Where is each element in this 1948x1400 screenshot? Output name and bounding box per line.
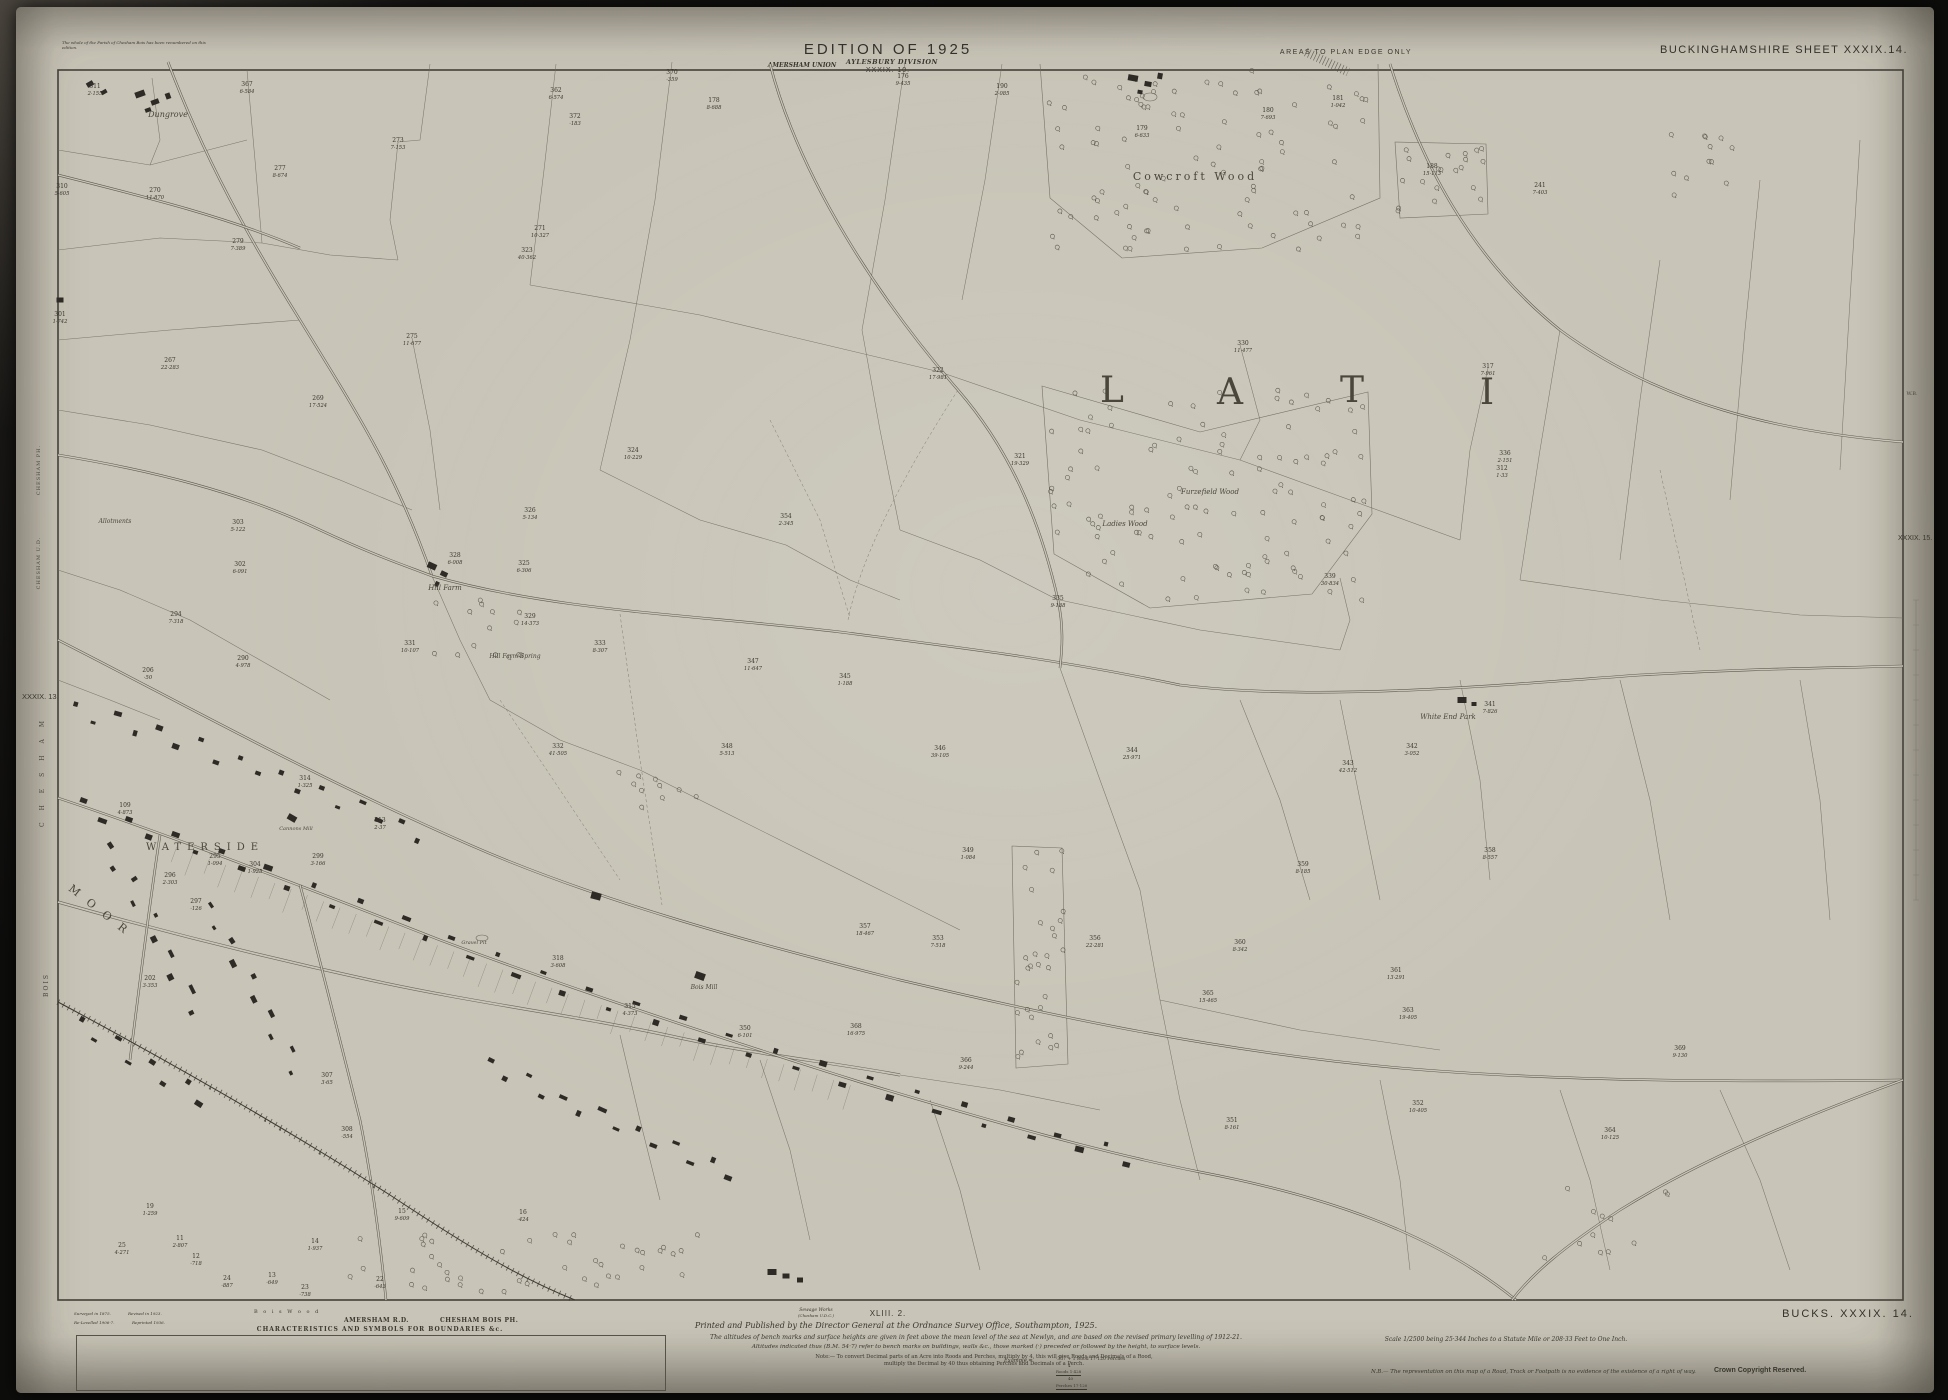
tree-icon	[606, 1274, 610, 1278]
field-boundary	[900, 530, 1058, 600]
parcel-number: 314	[299, 775, 311, 782]
tree-icon	[458, 1283, 462, 1287]
building	[981, 1123, 986, 1128]
parcel-number: 372	[569, 113, 581, 120]
tree-icon	[1189, 466, 1193, 470]
tree-icon	[1121, 89, 1122, 90]
tree-icon	[1091, 522, 1095, 526]
parcel-acreage: 4·873	[117, 810, 134, 816]
garden-strip	[843, 1085, 851, 1109]
tree-icon	[1060, 145, 1064, 149]
tree-icon	[682, 1253, 683, 1254]
building	[558, 990, 566, 997]
tree-icon	[1098, 470, 1099, 471]
parcel-number: 178	[708, 97, 720, 104]
field-boundary	[1160, 1000, 1200, 1180]
tree-icon	[563, 1265, 567, 1269]
parcel-acreage: 11·647	[744, 666, 763, 672]
building	[487, 1057, 495, 1064]
building	[294, 788, 301, 794]
tree-icon	[1612, 1221, 1613, 1222]
parcel-acreage: 7·389	[231, 246, 247, 252]
parcel-number: 335	[1052, 595, 1064, 602]
tree-icon	[1023, 865, 1027, 869]
tree-icon	[1321, 461, 1325, 465]
parcel-acreage: 7·693	[1261, 115, 1277, 121]
tree-icon	[1026, 869, 1027, 870]
tree-icon	[421, 1242, 425, 1246]
tree-icon	[1087, 517, 1091, 521]
parcel-acreage: 19·329	[1011, 461, 1030, 467]
parcel-number: 345	[839, 673, 851, 680]
tree-icon	[1168, 493, 1172, 497]
tree-icon	[1325, 454, 1329, 458]
tree-icon	[1457, 172, 1458, 173]
tree-icon	[493, 614, 494, 615]
tree-icon	[1707, 159, 1711, 163]
tree-icon	[594, 1283, 598, 1287]
tree-icon	[1719, 136, 1723, 140]
tree-icon	[1070, 506, 1071, 507]
tree-icon	[1308, 222, 1312, 226]
tree-icon	[514, 620, 518, 624]
tree-icon	[1484, 163, 1485, 164]
building	[155, 724, 163, 731]
tree-icon	[1236, 95, 1237, 96]
tree-icon	[1546, 1260, 1547, 1261]
tree-icon	[1333, 450, 1337, 454]
tree-icon	[1733, 150, 1734, 151]
building	[768, 1269, 777, 1275]
parcel-number: 361	[1390, 967, 1401, 974]
tree-icon	[1194, 595, 1198, 599]
road	[1390, 64, 1903, 442]
building	[107, 841, 114, 849]
field-boundary	[600, 470, 786, 545]
parcel-acreage: 1·742	[53, 319, 68, 325]
tree-icon	[1042, 1010, 1043, 1011]
tree-icon	[1015, 1011, 1019, 1015]
tree-icon	[1265, 559, 1269, 563]
tree-icon	[1602, 1254, 1603, 1255]
tree-icon	[1176, 126, 1180, 130]
parcel-acreage: 5·605	[55, 191, 70, 197]
parcel-number: 329	[524, 613, 536, 620]
tree-icon	[1036, 956, 1037, 957]
parcel-number: 370	[666, 69, 678, 76]
tree-icon	[1577, 1241, 1581, 1245]
tree-icon	[1038, 1005, 1042, 1009]
field-boundary	[262, 450, 412, 510]
tree-icon	[1632, 1241, 1636, 1245]
parcel-number: 317	[1482, 363, 1494, 370]
parcel-acreage: 6·008	[448, 560, 464, 566]
tree-icon	[1305, 455, 1309, 459]
tree-icon	[1323, 520, 1324, 521]
parcel-acreage: 8·557	[1483, 855, 1499, 861]
building	[57, 298, 64, 303]
tree-icon	[1134, 530, 1138, 534]
building	[838, 1081, 847, 1088]
tree-icon	[517, 610, 521, 614]
tree-icon	[1262, 171, 1263, 172]
tree-icon	[1052, 1049, 1053, 1050]
tree-icon	[479, 1289, 483, 1293]
parcel-number: 365	[1202, 990, 1214, 997]
parcel-acreage: 22·281	[1085, 943, 1104, 949]
tree-icon	[599, 1262, 603, 1266]
parcel-acreage: 30·834	[1321, 581, 1339, 587]
parcel-acreage: 5·134	[523, 515, 538, 521]
tree-icon	[1356, 234, 1360, 238]
tree-icon	[517, 1279, 521, 1283]
tree-icon	[632, 782, 636, 786]
place-label: Cannons Mill	[279, 826, 313, 832]
tree-icon	[1018, 984, 1019, 985]
tree-icon	[1594, 1237, 1595, 1238]
tree-icon	[1058, 1047, 1059, 1048]
tree-icon	[680, 1273, 684, 1277]
tree-icon	[1261, 590, 1265, 594]
field-boundary	[1620, 260, 1660, 560]
tree-icon	[1361, 118, 1365, 122]
tree-icon	[361, 1241, 362, 1242]
field-boundary	[940, 372, 1240, 460]
tree-icon	[1245, 198, 1249, 202]
tree-icon	[1135, 240, 1136, 241]
tree-icon	[674, 1256, 675, 1257]
tree-icon	[1278, 400, 1279, 401]
tree-icon	[1363, 101, 1364, 102]
tree-icon	[679, 1248, 683, 1252]
tree-icon	[1139, 188, 1140, 189]
tree-icon	[1063, 149, 1064, 150]
river-chess	[58, 902, 900, 1075]
place-label: I	[1480, 372, 1494, 413]
tree-icon	[575, 1237, 576, 1238]
tree-icon	[1246, 572, 1250, 576]
building	[283, 885, 290, 892]
tree-icon	[1292, 494, 1293, 495]
tree-icon	[1120, 582, 1124, 586]
parcel-number: 349	[962, 847, 974, 854]
tree-icon	[1397, 206, 1401, 210]
parcel-number: 12	[192, 1253, 200, 1260]
place-label: A	[1216, 372, 1244, 413]
building	[866, 1075, 874, 1080]
garden-strip	[366, 920, 372, 936]
tree-icon	[1361, 516, 1362, 517]
tree-icon	[1292, 404, 1293, 405]
parcel-acreage: ·183	[569, 121, 581, 127]
parcel-acreage: 3·166	[311, 861, 327, 867]
tree-icon	[1292, 103, 1296, 107]
building	[1027, 1134, 1036, 1140]
tree-icon	[1296, 247, 1300, 251]
tree-icon	[1435, 186, 1439, 190]
tree-icon	[1148, 233, 1149, 234]
tree-icon	[1708, 144, 1712, 148]
tree-icon	[1672, 137, 1673, 138]
tree-icon	[1722, 140, 1723, 141]
parcel-acreage: 1·188	[838, 681, 854, 687]
tree-icon	[1298, 574, 1302, 578]
tree-icon	[1156, 86, 1157, 87]
tree-icon	[1344, 551, 1348, 555]
building	[1472, 702, 1477, 706]
tree-icon	[1092, 80, 1096, 84]
tree-icon	[1217, 568, 1218, 569]
parcel-acreage: 10·405	[1409, 1108, 1427, 1114]
tree-icon	[1038, 921, 1042, 925]
tree-icon	[1050, 970, 1051, 971]
parcel-acreage: 1·937	[308, 1246, 324, 1252]
tree-icon	[610, 1278, 611, 1279]
parcel-acreage: 15·113	[1423, 171, 1442, 177]
tree-icon	[1251, 228, 1252, 229]
building	[208, 902, 214, 909]
tree-icon	[1064, 913, 1065, 914]
tree-icon	[409, 1282, 413, 1286]
tree-icon	[1128, 246, 1132, 250]
building	[290, 1045, 296, 1052]
parcel-number: 348	[721, 743, 733, 750]
parcel-acreage: 39·105	[931, 753, 949, 759]
tree-icon	[1145, 109, 1146, 110]
tree-icon	[1354, 502, 1355, 503]
field-boundary	[800, 850, 960, 930]
tree-icon	[1400, 178, 1404, 182]
field-boundary	[930, 1100, 980, 1270]
tree-icon	[358, 1237, 362, 1241]
field-boundary	[1520, 580, 1903, 618]
tree-icon	[1294, 211, 1298, 215]
tree-icon	[1173, 519, 1174, 520]
tree-icon	[1399, 213, 1400, 214]
field-boundary	[600, 62, 672, 470]
tree-icon	[1675, 197, 1676, 198]
tree-icon	[426, 1290, 427, 1291]
building	[166, 973, 174, 981]
tree-icon	[1126, 96, 1130, 100]
tree-icon	[1569, 1190, 1570, 1191]
tree-icon	[1053, 490, 1054, 491]
tree-icon	[1354, 92, 1358, 96]
tree-icon	[1095, 84, 1096, 85]
parcel-number: 350	[739, 1025, 751, 1032]
place-label: L	[1100, 370, 1124, 411]
tree-icon	[1135, 97, 1139, 101]
tree-icon	[1174, 206, 1178, 210]
tree-icon	[1223, 446, 1224, 447]
tree-icon	[1054, 930, 1055, 931]
tree-icon	[1217, 145, 1221, 149]
tree-icon	[1172, 406, 1173, 407]
parcel-acreage: 5·122	[231, 527, 246, 533]
tree-icon	[1024, 956, 1028, 960]
parcel-acreage: 10·107	[401, 648, 420, 654]
tree-icon	[1197, 600, 1198, 601]
tree-icon	[1271, 233, 1275, 237]
parcel-acreage: 19·405	[1399, 1015, 1417, 1021]
field-boundary	[900, 1075, 1100, 1110]
building	[144, 833, 152, 841]
map-border	[58, 70, 1903, 1300]
tree-icon	[1254, 188, 1255, 189]
tree-icon	[1072, 219, 1073, 220]
tree-icon	[1175, 93, 1176, 94]
tree-icon	[1291, 566, 1295, 570]
field-boundary	[640, 770, 800, 850]
tree-icon	[1332, 160, 1336, 164]
tree-icon	[1187, 251, 1188, 252]
tree-icon	[1279, 483, 1283, 487]
place-label: MOOR	[66, 882, 138, 942]
parcel-acreage: ·738	[299, 1292, 311, 1298]
tree-icon	[643, 792, 644, 793]
tree-icon	[1242, 570, 1246, 574]
parcel-number: 322	[932, 367, 944, 374]
tree-icon	[1263, 164, 1264, 165]
tree-icon	[1246, 563, 1250, 567]
tree-icon	[640, 778, 641, 779]
tree-icon	[1098, 539, 1099, 540]
tree-icon	[1069, 480, 1070, 481]
parcel-number: 366	[960, 1057, 972, 1064]
tree-icon	[1317, 236, 1321, 240]
building	[597, 1106, 607, 1113]
building	[931, 1109, 942, 1116]
field-boundary	[962, 64, 1002, 300]
parcel-acreage: 1·094	[208, 861, 223, 867]
parcel-acreage: 7·518	[931, 943, 947, 949]
tree-icon	[459, 657, 460, 658]
parcel-acreage: 1·259	[143, 1211, 159, 1217]
tree-icon	[1092, 419, 1093, 420]
tree-icon	[1364, 123, 1365, 124]
field-boundary	[150, 78, 160, 165]
tree-icon	[1123, 586, 1124, 587]
tree-icon	[1053, 433, 1054, 434]
tree-icon	[1204, 426, 1205, 427]
parcel-acreage: 8·161	[1225, 1125, 1240, 1131]
tree-icon	[531, 1242, 532, 1243]
tree-icon	[430, 1239, 434, 1243]
tree-icon	[1600, 1214, 1604, 1218]
tree-icon	[1172, 112, 1176, 116]
tree-icon	[1248, 592, 1249, 593]
building	[319, 785, 326, 791]
tree-icon	[1280, 150, 1284, 154]
building	[188, 984, 196, 994]
tree-icon	[1050, 105, 1051, 106]
tree-icon	[1471, 186, 1475, 190]
tree-icon	[1248, 202, 1249, 203]
tree-icon	[1251, 184, 1255, 188]
building	[168, 949, 175, 958]
tree-icon	[1356, 225, 1360, 229]
tree-icon	[1039, 967, 1040, 968]
tree-icon	[1543, 1256, 1547, 1260]
tree-icon	[635, 1248, 639, 1252]
scanned-map-photo: The whole of the Parish of Chesham Bois …	[0, 0, 1948, 1400]
tree-icon	[1022, 1054, 1023, 1055]
tree-icon	[502, 1289, 506, 1293]
tree-icon	[1269, 130, 1273, 134]
parcel-number: 310	[56, 183, 68, 190]
parcel-acreage: 22·283	[160, 365, 180, 371]
tree-icon	[1285, 551, 1289, 555]
building	[511, 972, 522, 979]
tree-icon	[1180, 539, 1184, 543]
place-label: White End Park	[1420, 713, 1476, 721]
tree-icon	[521, 614, 522, 615]
parcel-number: 313	[374, 817, 386, 824]
parcel-number: 323	[521, 247, 533, 254]
parcel-acreage: ·554	[341, 1134, 353, 1140]
tree-icon	[1463, 157, 1467, 161]
tree-icon	[1276, 493, 1277, 494]
tree-icon	[1222, 86, 1223, 87]
field-boundary	[1380, 1080, 1410, 1270]
tree-icon	[1138, 534, 1139, 535]
tree-icon	[1177, 437, 1181, 441]
building	[91, 1037, 98, 1043]
parcel-acreage: 40·362	[517, 255, 536, 261]
parcel-acreage: 17·981	[929, 375, 947, 381]
parcel-acreage: 14·373	[521, 621, 540, 627]
tree-icon	[1263, 555, 1267, 559]
tree-icon	[1049, 429, 1053, 433]
tree-icon	[1198, 532, 1202, 536]
parcel-number: 364	[1604, 1127, 1616, 1134]
tree-icon	[1328, 458, 1329, 459]
tree-icon	[1153, 198, 1157, 202]
tree-icon	[1204, 509, 1208, 513]
parcel-acreage: 13·291	[1387, 975, 1405, 981]
tree-icon	[620, 774, 621, 775]
tree-icon	[1192, 470, 1193, 471]
tree-icon	[1045, 954, 1049, 958]
tree-icon	[1299, 251, 1300, 252]
parcel-acreage: 10·327	[531, 233, 550, 239]
tree-icon	[424, 1246, 425, 1247]
parcel-acreage: 8·674	[273, 173, 288, 179]
tree-icon	[1061, 923, 1062, 924]
tree-icon	[1449, 157, 1450, 158]
tree-icon	[1146, 105, 1150, 109]
tree-icon	[1304, 210, 1308, 214]
tree-icon	[1183, 117, 1184, 118]
parcel-number: 356	[1089, 935, 1101, 942]
building	[250, 995, 258, 1004]
tree-icon	[620, 1244, 624, 1248]
tree-icon	[1474, 190, 1475, 191]
tree-icon	[1442, 172, 1443, 173]
tree-icon	[1273, 489, 1277, 493]
map-canvas: 3112·1553676·5843626·574370·359372·18317…	[0, 0, 1948, 1400]
wood-outline	[1395, 142, 1488, 218]
building	[97, 817, 107, 824]
parcel-acreage: 8·688	[707, 105, 723, 111]
tree-icon	[1362, 499, 1366, 503]
wood-outline	[1042, 386, 1372, 608]
garden-strip	[234, 871, 242, 892]
building	[612, 1126, 620, 1132]
tree-icon	[438, 1263, 442, 1267]
tree-icon	[1241, 216, 1242, 217]
tree-icon	[1130, 100, 1131, 101]
